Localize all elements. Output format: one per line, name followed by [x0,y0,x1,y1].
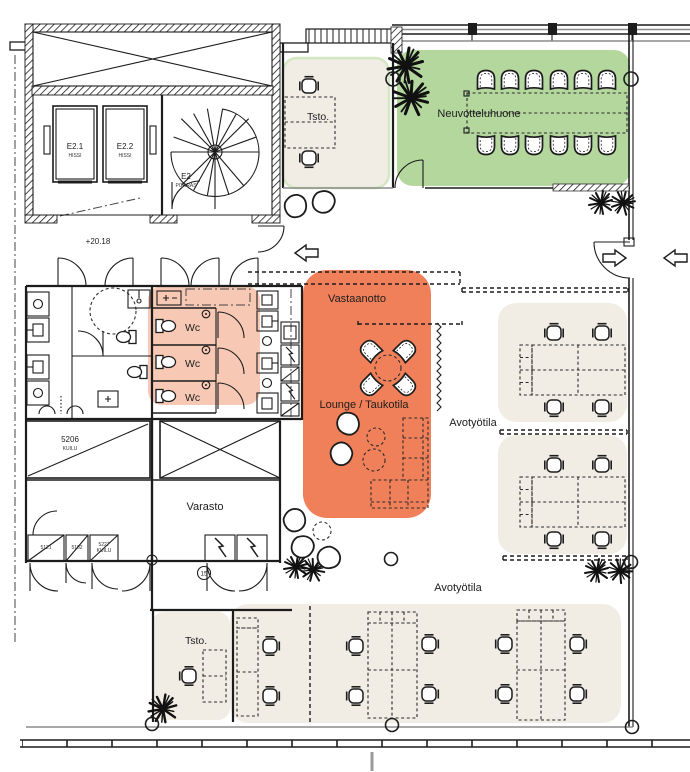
plant-icon [604,554,636,586]
elevator-1-type: HISSI [68,153,81,159]
fixtures-right [257,289,299,417]
lounge-chair-icon [280,505,310,535]
elevator-stair-core: E2.1 HISSI E2.2 HISSI E2 PORRAS [25,24,280,223]
toilet-icon [156,390,176,403]
shaft-id: 5206 [61,435,79,444]
storage-block: 5206 KUILU Varasto 5121 5102 5227 KUILU [26,420,280,591]
lounge-label: Lounge / Taukotila [319,399,409,411]
plant-icon [589,191,612,214]
plant-icon [585,559,608,582]
wc-label-1: Wc [185,322,200,334]
electrical-icon [215,538,226,557]
electrical-icon [247,538,258,557]
door-swing-core [60,198,140,216]
chair-icon [575,71,592,90]
small-shaft-2: 5102 [71,545,82,551]
small-shafts: 5121 5102 5227 KUILU [28,535,118,561]
chair-icon [502,71,519,90]
office-bottom-label: Tsto. [185,635,207,647]
elevator-2-id: E2.2 [117,142,134,151]
elevator-2-type: HISSI [118,153,131,159]
zone-office-top [283,58,389,188]
workspace-bottom-label: Avotyötila [434,582,482,594]
lounge-chair-icon [282,192,310,220]
level-marker: +20.18 [86,237,111,246]
entry-door-right [594,238,687,278]
chair-icon [551,136,568,155]
direction-arrow-out [664,250,687,266]
chair-icon [599,136,616,155]
office-top-label: Tsto. [307,111,329,123]
elevator-1-id: E2.1 [67,142,84,151]
wc-label-2: Wc [185,358,200,370]
shaft-type: KUILU [63,446,78,452]
zone-workspace-bottom [230,604,621,723]
direction-arrow-in [603,250,626,266]
lounge-chair-icon [310,188,337,215]
toilet-icon [156,320,176,333]
floor-plan-page: E2.1 HISSI E2.2 HISSI E2 PORRAS +20.18 [0,0,690,772]
chair-icon [575,136,592,155]
column [385,553,398,566]
chair-icon [551,71,568,90]
chair-icon [478,136,495,155]
storage-label: Varasto [186,501,223,513]
reception-label: Vastaanotto [328,293,386,305]
wc-label-3: Wc [185,392,200,404]
fixtures-left [27,292,49,405]
turning-circle [90,288,136,334]
accessible-wc [39,286,152,419]
window-band [306,29,394,43]
shaft-void [33,32,272,86]
meeting-room-label: Neuvotteluhuone [437,108,520,120]
chair-icon [526,71,543,90]
floor-plan-drawing: E2.1 HISSI E2.2 HISSI E2 PORRAS +20.18 [0,0,690,772]
chair-icon [502,136,519,155]
small-shaft-1: 5121 [40,545,51,551]
corridor-doors [26,226,318,286]
pouf [313,522,331,540]
small-shaft-3-type: KUILU [97,548,112,554]
chair-icon [599,71,616,90]
spiral-stair: E2 PORRAS [171,109,259,209]
elevator-1: E2.1 HISSI [53,106,97,182]
chair-icon [478,71,495,90]
stair-id: E2 [181,172,191,181]
workspace-right-label: Avotyötila [449,417,497,429]
door-tag: 15 [201,572,208,578]
direction-arrow-corridor [295,245,318,261]
partition-zigzag [437,323,441,411]
lounge-chair-icon [289,533,317,561]
chair-icon [526,136,543,155]
toilet-icon [156,356,176,369]
column [625,556,638,569]
toilet-icon [128,366,148,379]
sill-hatch [553,184,629,191]
toilet-icon [117,331,137,344]
elevator-2: E2.2 HISSI [103,106,147,182]
